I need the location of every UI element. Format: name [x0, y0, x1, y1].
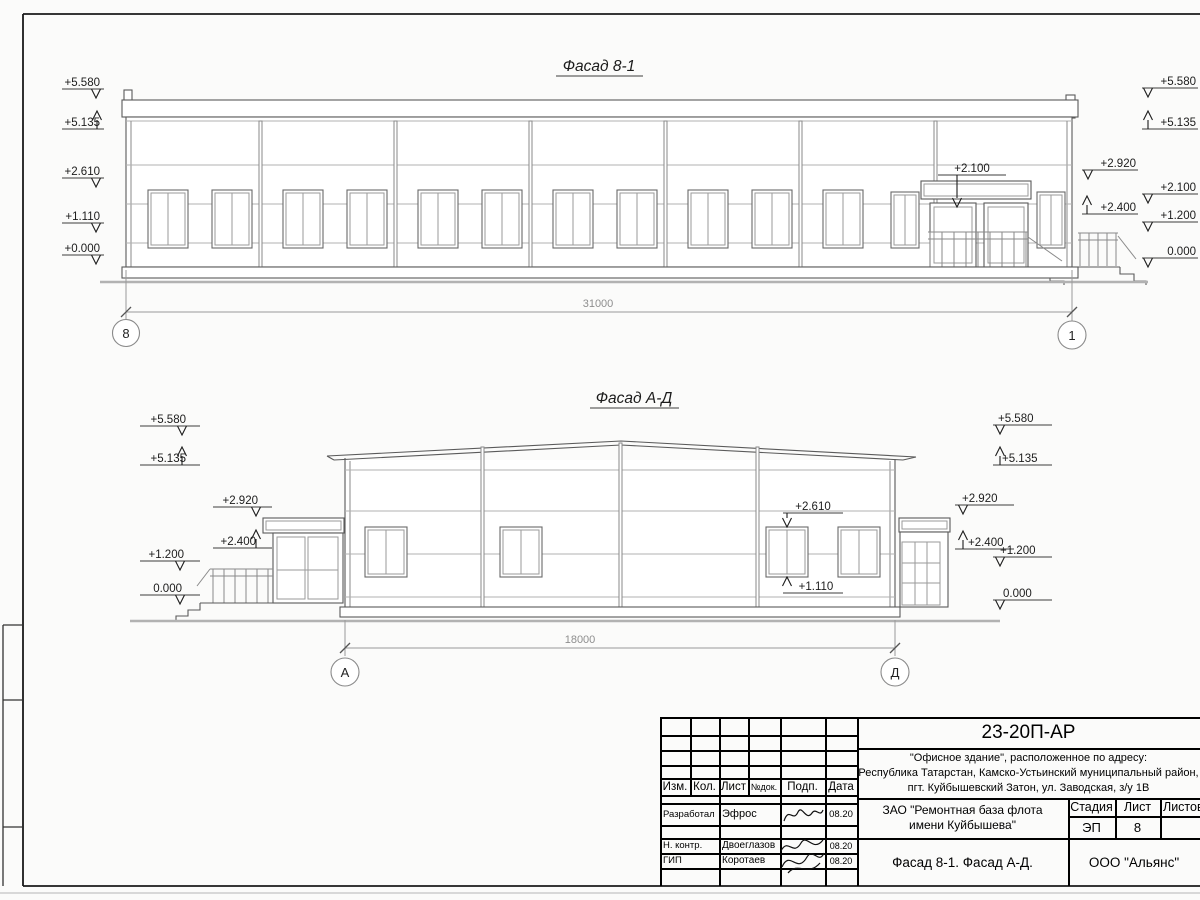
facade-8-1-marks-left: +5.580 +5.135 +2.610 +1.110 +0.000	[62, 77, 104, 264]
elevation-mark: +2.610	[65, 166, 101, 178]
elevation-mark: +5.135	[1002, 453, 1038, 465]
col-izm: Изм.	[660, 778, 690, 795]
elevation-mark: +1.200	[1000, 545, 1036, 557]
row-date: 08.20	[826, 804, 856, 824]
elevation-mark: +2.400	[221, 536, 257, 548]
elevation-mark: +5.135	[65, 117, 101, 129]
elevation-mark: 0.000	[1167, 246, 1196, 258]
sheet-title: Фасад 8-1. Фасад А-Д.	[857, 838, 1068, 886]
address-line: Республика Татарстан, Камско-Устьинский …	[858, 766, 1198, 781]
address-line: "Офисное здание", расположенное по адрес…	[910, 751, 1147, 766]
elevation-mark: +2.100	[954, 163, 990, 175]
signature	[781, 803, 825, 827]
company-name: ООО "Альянс"	[1068, 838, 1200, 886]
facade-a-d-drawing: Фасад А-Д	[130, 390, 1052, 686]
signature	[778, 835, 826, 879]
grid-line	[660, 795, 857, 797]
facade-8-1-marks-right-outer: +5.580 +5.135 +2.100 +1.200 0.000	[1142, 76, 1198, 267]
dimension-label: 31000	[583, 298, 614, 310]
elevation-mark: +2.920	[962, 493, 998, 505]
row-date: 08.20	[826, 839, 856, 852]
col-ndok: №док.	[748, 778, 780, 795]
grid-line	[660, 825, 857, 827]
axis-marker-a: А	[341, 665, 350, 680]
elevation-mark: +5.135	[151, 453, 187, 465]
row-role: ГИП	[663, 854, 718, 867]
facade-8-1-building	[100, 90, 1148, 285]
sheet-number: 8	[1115, 816, 1160, 838]
facade-a-d-left-entrance	[176, 518, 344, 620]
elevation-mark: +2.400	[968, 537, 1004, 549]
row-name: Эфрос	[722, 804, 779, 824]
grid-line	[660, 717, 662, 886]
elevation-mark: +2.400	[1101, 202, 1137, 214]
facade-a-d-right-entrance	[899, 518, 950, 607]
client-line: ЗАО "Ремонтная база флота	[882, 803, 1042, 818]
axis-marker-1: 1	[1068, 328, 1075, 343]
row-name: Коротаев	[722, 854, 779, 867]
facade-8-1-drawing: Фасад 8-1	[62, 58, 1198, 349]
elevation-mark: +2.920	[223, 495, 259, 507]
client-line: имени Куйбышева"	[909, 818, 1016, 833]
client-name: ЗАО "Ремонтная база флота имени Куйбышев…	[857, 798, 1068, 838]
col-list: Лист	[719, 778, 748, 795]
margin-cells	[3, 625, 23, 886]
elevation-mark: +1.110	[799, 581, 834, 593]
stage-value: ЭП	[1068, 816, 1115, 838]
row-role: Н. контр.	[663, 839, 718, 852]
doc-number: 23-20П-АР	[857, 717, 1200, 748]
elevation-mark: +5.580	[151, 414, 187, 426]
facade-a-d-marks-right: +2.920 +2.400 +5.580 +5.135 +1.200 0.000	[955, 413, 1052, 609]
elevation-mark: 0.000	[153, 583, 182, 595]
col-kol: Кол.	[690, 778, 719, 795]
sheets-label: Листов	[1160, 798, 1200, 816]
facade-a-d-building	[130, 441, 1000, 621]
elevation-mark: +5.580	[998, 413, 1034, 425]
facade-a-d-title: Фасад А-Д	[596, 390, 673, 407]
elevation-mark: +0.000	[65, 243, 101, 255]
title-block: Изм. Кол. Лист №док. Подп. Дата Разработ…	[660, 717, 1200, 886]
elevation-mark: +5.580	[1161, 76, 1197, 88]
grid-line	[660, 868, 857, 870]
elevation-mark: 0.000	[1003, 588, 1032, 600]
axis-marker-d: Д	[891, 665, 900, 680]
elevation-mark: +1.200	[1161, 210, 1197, 222]
col-data: Дата	[825, 778, 857, 795]
sheet-label: Лист	[1115, 798, 1160, 816]
elevation-mark: +5.135	[1161, 117, 1197, 129]
elevation-mark: +1.200	[149, 549, 185, 561]
elevation-mark: +5.580	[65, 77, 101, 89]
col-podp: Подп.	[780, 778, 825, 795]
row-date: 08.20	[826, 854, 856, 867]
row-name: Двоеглазов	[722, 839, 779, 852]
elevation-mark: +2.610	[795, 501, 831, 513]
facade-8-1-marks-right-inner: +2.920 +2.400	[1082, 158, 1138, 214]
grid-line	[719, 717, 721, 886]
elevation-mark: +2.100	[1161, 182, 1197, 194]
facade-8-1-title: Фасад 8-1	[563, 58, 636, 75]
elevation-mark: +1.110	[65, 211, 100, 223]
project-address: "Офисное здание", расположенное по адрес…	[857, 748, 1200, 798]
dimension-label: 18000	[565, 634, 596, 646]
stage-label: Стадия	[1068, 798, 1115, 816]
row-role: Разработал	[663, 804, 718, 824]
elevation-mark: +2.920	[1101, 158, 1137, 170]
facade-8-1-side-porch	[1075, 233, 1146, 285]
address-line: пгт. Куйбышевский Затон, ул. Заводская, …	[908, 781, 1150, 796]
facade-a-d-dimension: 18000 А Д	[331, 620, 909, 686]
axis-marker-8: 8	[122, 326, 129, 341]
